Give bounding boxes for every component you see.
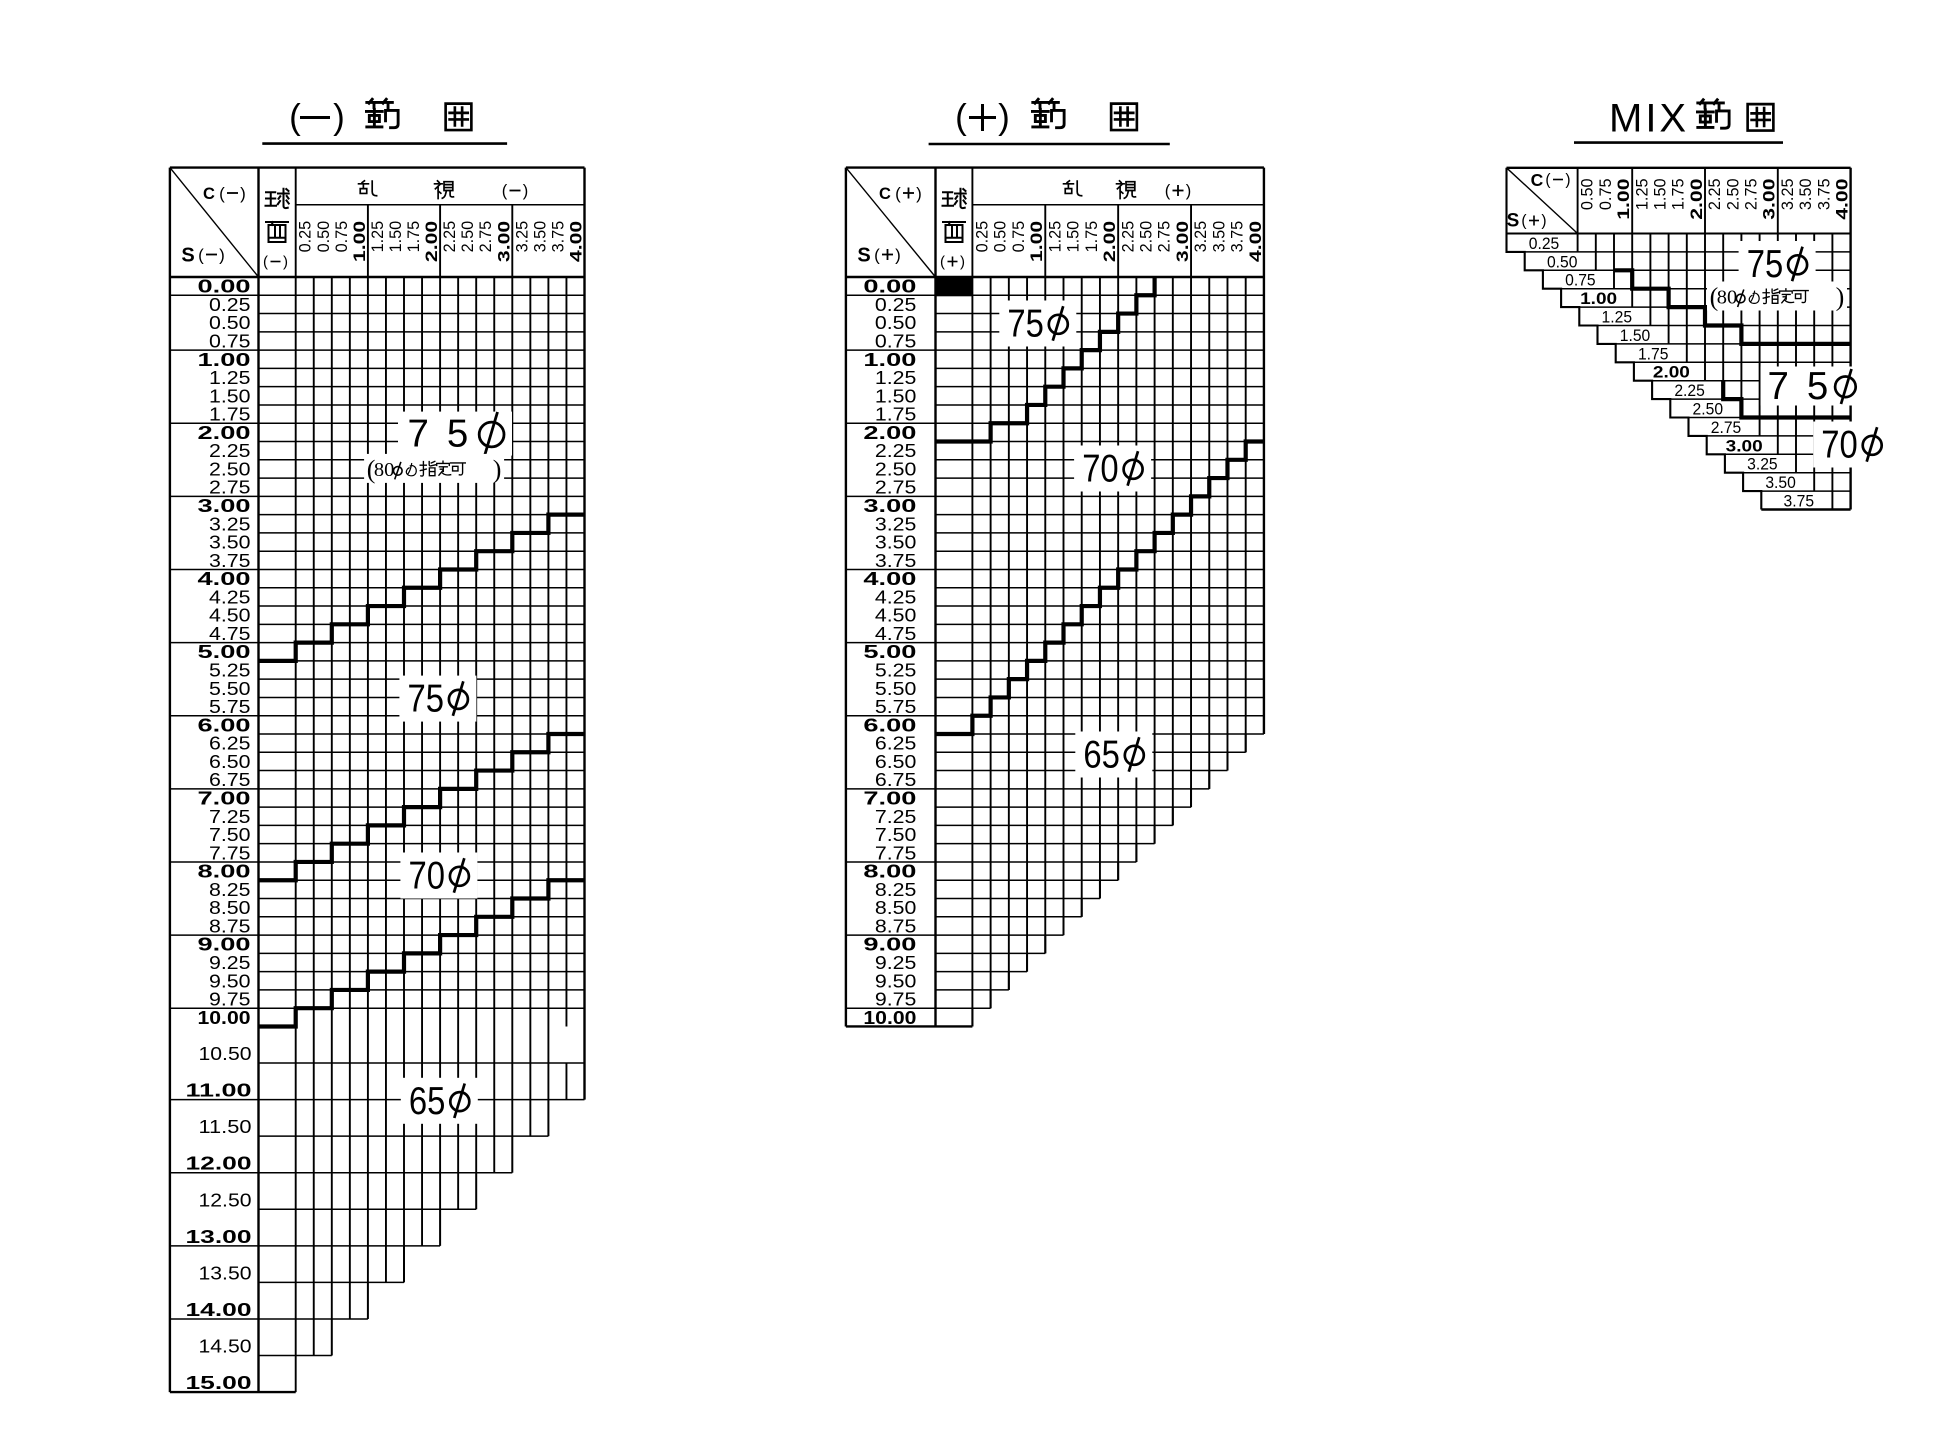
svg-text:1.50: 1.50 bbox=[386, 221, 405, 253]
svg-text:3.75: 3.75 bbox=[1784, 493, 1815, 511]
svg-text:12.50: 12.50 bbox=[199, 1189, 252, 1210]
svg-text:0.25: 0.25 bbox=[296, 221, 315, 253]
svg-text:75: 75 bbox=[1007, 303, 1044, 346]
svg-text:2.75: 2.75 bbox=[1711, 419, 1742, 437]
svg-text:3.50: 3.50 bbox=[530, 221, 549, 253]
svg-text:MIX: MIX bbox=[1609, 97, 1689, 141]
svg-text:2.25: 2.25 bbox=[1674, 382, 1705, 400]
svg-text:S: S bbox=[857, 245, 870, 267]
svg-text:1.00: 1.00 bbox=[1027, 221, 1046, 262]
svg-text:2.75: 2.75 bbox=[1155, 221, 1174, 253]
svg-text:2.50: 2.50 bbox=[1723, 179, 1742, 211]
svg-text:13.00: 13.00 bbox=[186, 1226, 252, 1247]
svg-text:): ) bbox=[960, 254, 965, 271]
svg-text:4.00: 4.00 bbox=[566, 221, 585, 262]
svg-text:(: ( bbox=[263, 254, 268, 271]
svg-text:70: 70 bbox=[409, 855, 446, 898]
svg-text:75: 75 bbox=[408, 678, 445, 721]
svg-text:0.50: 0.50 bbox=[314, 221, 333, 253]
svg-text:0.25: 0.25 bbox=[973, 221, 992, 253]
svg-text:(: ( bbox=[895, 184, 901, 203]
svg-text:3.25: 3.25 bbox=[1778, 179, 1797, 211]
svg-text:): ) bbox=[1541, 213, 1546, 230]
svg-text:): ) bbox=[523, 182, 529, 200]
svg-text:80: 80 bbox=[374, 459, 395, 481]
svg-text:0.75: 0.75 bbox=[1009, 221, 1028, 253]
svg-text:1.75: 1.75 bbox=[1082, 221, 1101, 253]
svg-text:(: ( bbox=[1165, 182, 1171, 200]
svg-text:(: ( bbox=[955, 98, 967, 137]
svg-text:14.50: 14.50 bbox=[199, 1336, 252, 1357]
svg-text:1.00: 1.00 bbox=[1580, 290, 1617, 308]
svg-text:(: ( bbox=[219, 184, 225, 203]
svg-text:3.25: 3.25 bbox=[1191, 221, 1210, 253]
svg-text:): ) bbox=[998, 98, 1010, 137]
svg-text:75: 75 bbox=[1747, 243, 1784, 286]
svg-text:): ) bbox=[1565, 172, 1570, 189]
svg-text:S: S bbox=[181, 245, 194, 267]
svg-text:2.50: 2.50 bbox=[1693, 401, 1724, 419]
svg-text:1.25: 1.25 bbox=[1602, 309, 1633, 327]
svg-text:1.00: 1.00 bbox=[1614, 179, 1633, 220]
svg-text:15.00: 15.00 bbox=[186, 1372, 252, 1393]
svg-text:3.50: 3.50 bbox=[1796, 179, 1815, 211]
svg-text:3.00: 3.00 bbox=[1726, 437, 1763, 455]
svg-text:13.50: 13.50 bbox=[199, 1262, 252, 1283]
svg-text:(: ( bbox=[198, 246, 204, 265]
svg-text:1.75: 1.75 bbox=[1638, 345, 1669, 363]
svg-text:(: ( bbox=[289, 98, 301, 137]
svg-text:2.25: 2.25 bbox=[1705, 179, 1724, 211]
svg-text:(: ( bbox=[874, 246, 880, 265]
svg-text:2.00: 2.00 bbox=[1100, 221, 1119, 262]
svg-text:(: ( bbox=[502, 182, 508, 200]
svg-text:3.25: 3.25 bbox=[1747, 456, 1778, 474]
svg-text:): ) bbox=[895, 246, 901, 265]
svg-text:): ) bbox=[493, 455, 502, 484]
svg-text:2.00: 2.00 bbox=[1653, 364, 1690, 382]
svg-text:0.50: 0.50 bbox=[1578, 179, 1597, 211]
svg-text:1.75: 1.75 bbox=[1669, 179, 1688, 211]
svg-text:4.00: 4.00 bbox=[1833, 179, 1852, 220]
svg-text:): ) bbox=[283, 254, 288, 271]
svg-text:1.25: 1.25 bbox=[368, 221, 387, 253]
svg-text:3.00: 3.00 bbox=[1173, 221, 1192, 262]
svg-text:): ) bbox=[1836, 283, 1845, 312]
svg-text:3.25: 3.25 bbox=[512, 221, 531, 253]
svg-text:(: ( bbox=[940, 254, 945, 271]
svg-text:3.00: 3.00 bbox=[494, 221, 513, 262]
svg-text:): ) bbox=[916, 184, 922, 203]
svg-text:3.50: 3.50 bbox=[1209, 221, 1228, 253]
svg-text:3.75: 3.75 bbox=[1228, 221, 1247, 253]
svg-text:1.25: 1.25 bbox=[1632, 179, 1651, 211]
svg-text:11.00: 11.00 bbox=[186, 1080, 252, 1101]
svg-text:C: C bbox=[879, 185, 891, 203]
svg-text:2.25: 2.25 bbox=[1118, 221, 1137, 253]
svg-text:): ) bbox=[240, 184, 246, 203]
svg-text:0.50: 0.50 bbox=[991, 221, 1010, 253]
svg-text:70: 70 bbox=[1082, 448, 1119, 491]
svg-text:2.50: 2.50 bbox=[1136, 221, 1155, 253]
svg-text:2.25: 2.25 bbox=[440, 221, 459, 253]
svg-text:1.00: 1.00 bbox=[350, 221, 369, 262]
svg-text:4.00: 4.00 bbox=[1246, 221, 1265, 262]
svg-text:2.50: 2.50 bbox=[458, 221, 477, 253]
svg-text:65: 65 bbox=[409, 1080, 446, 1123]
svg-text:(: ( bbox=[1521, 213, 1527, 230]
svg-text:65: 65 bbox=[1083, 734, 1120, 777]
svg-text:C: C bbox=[1531, 170, 1544, 190]
svg-text:1.50: 1.50 bbox=[1620, 327, 1651, 345]
svg-text:3.50: 3.50 bbox=[1765, 474, 1796, 492]
svg-text:): ) bbox=[219, 246, 225, 265]
svg-text:0.25: 0.25 bbox=[1529, 235, 1560, 253]
svg-text:0.75: 0.75 bbox=[1596, 179, 1615, 211]
svg-text:): ) bbox=[1186, 182, 1192, 200]
svg-text:3.00: 3.00 bbox=[1760, 179, 1779, 220]
svg-text:2.75: 2.75 bbox=[476, 221, 495, 253]
svg-text:2.00: 2.00 bbox=[1687, 179, 1706, 220]
svg-text:1.75: 1.75 bbox=[404, 221, 423, 253]
svg-text:80: 80 bbox=[1717, 287, 1738, 309]
svg-text:S: S bbox=[1507, 211, 1520, 232]
svg-text:0.75: 0.75 bbox=[332, 221, 351, 253]
svg-text:11.50: 11.50 bbox=[199, 1116, 252, 1137]
svg-text:75: 75 bbox=[408, 413, 487, 456]
svg-text:70: 70 bbox=[1821, 424, 1858, 467]
svg-text:10.50: 10.50 bbox=[199, 1043, 252, 1064]
svg-text:3.75: 3.75 bbox=[548, 221, 567, 253]
svg-text:0.50: 0.50 bbox=[1547, 253, 1578, 271]
svg-text:0.75: 0.75 bbox=[1565, 272, 1596, 290]
svg-text:1.25: 1.25 bbox=[1045, 221, 1064, 253]
svg-text:2.75: 2.75 bbox=[1742, 179, 1761, 211]
svg-text:14.00: 14.00 bbox=[186, 1299, 252, 1320]
svg-text:(: ( bbox=[1545, 172, 1551, 189]
svg-text:10.00: 10.00 bbox=[863, 1007, 916, 1028]
svg-text:): ) bbox=[333, 98, 345, 137]
svg-text:12.00: 12.00 bbox=[186, 1153, 252, 1174]
svg-text:1.50: 1.50 bbox=[1064, 221, 1083, 253]
svg-text:3.75: 3.75 bbox=[1814, 179, 1833, 211]
svg-text:1.50: 1.50 bbox=[1651, 179, 1670, 211]
svg-text:C: C bbox=[203, 185, 215, 203]
svg-text:10.00: 10.00 bbox=[198, 1007, 251, 1028]
svg-text:2.00: 2.00 bbox=[422, 221, 441, 262]
